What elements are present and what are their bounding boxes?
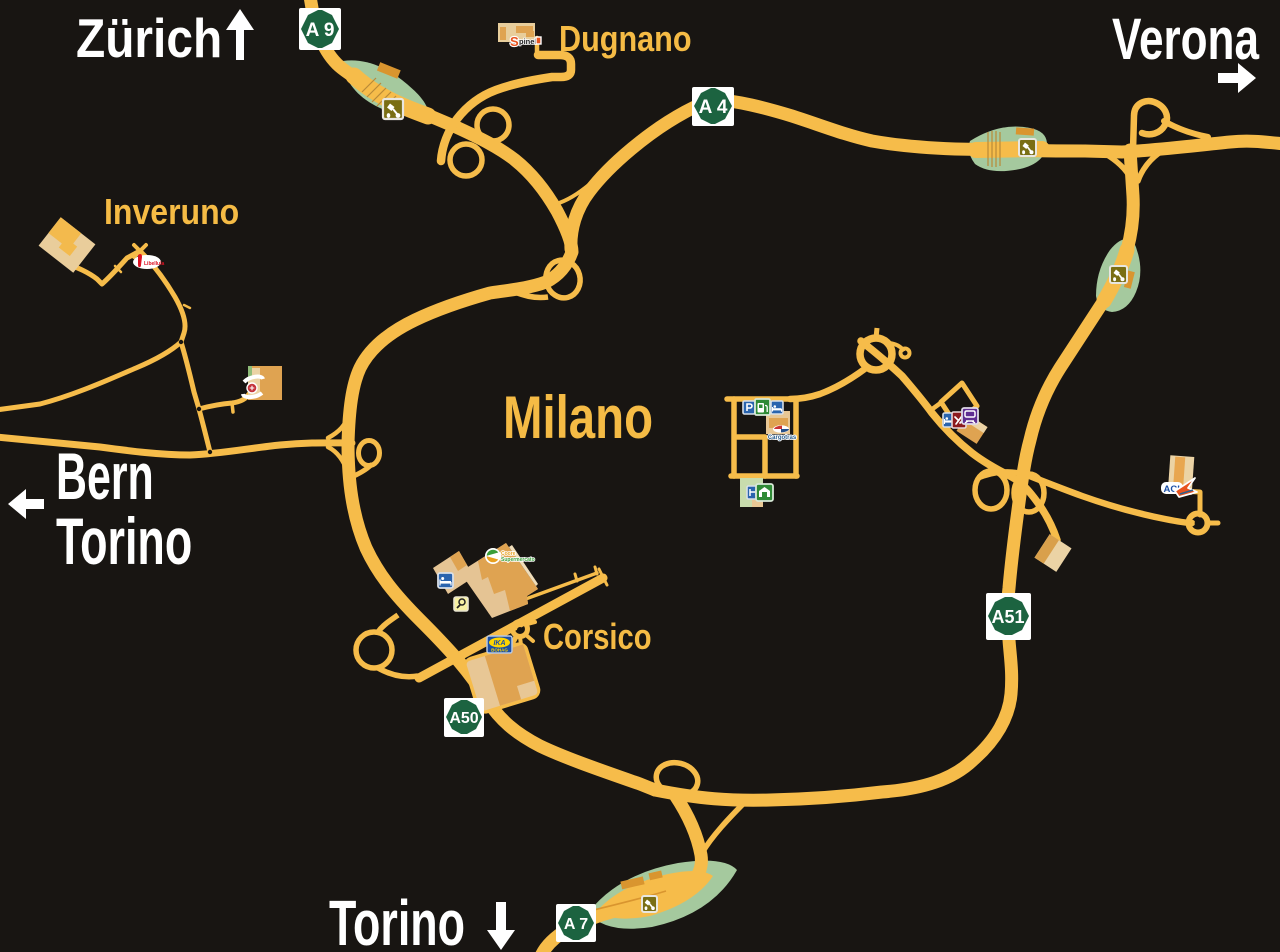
svg-text:pinel: pinel bbox=[519, 37, 537, 46]
svg-text:Zürich: Zürich bbox=[76, 7, 222, 69]
svg-text:Verona: Verona bbox=[1112, 6, 1259, 71]
svg-text:Inveruno: Inveruno bbox=[104, 192, 239, 232]
svg-text:Torino: Torino bbox=[329, 887, 465, 952]
svg-text:IKA: IKA bbox=[493, 640, 505, 647]
svg-text:Cargotras: Cargotras bbox=[768, 435, 797, 441]
svg-text:Supermercato: Supermercato bbox=[501, 557, 535, 563]
svg-text:Dugnano: Dugnano bbox=[559, 20, 692, 60]
svg-text:S: S bbox=[510, 34, 519, 49]
svg-text:A 7: A 7 bbox=[564, 916, 588, 933]
svg-text:Bern: Bern bbox=[56, 440, 154, 514]
svg-text:Milano: Milano bbox=[503, 385, 653, 452]
svg-text:Libellula: Libellula bbox=[144, 261, 165, 267]
svg-text:A 4: A 4 bbox=[699, 97, 728, 118]
svg-text:A51: A51 bbox=[991, 607, 1024, 627]
svg-text:Torino: Torino bbox=[56, 504, 192, 578]
svg-text:A 9: A 9 bbox=[306, 20, 335, 41]
svg-text:BOHAG: BOHAG bbox=[491, 648, 508, 653]
svg-text:Corsico: Corsico bbox=[543, 616, 652, 657]
svg-text:A50: A50 bbox=[449, 710, 478, 727]
